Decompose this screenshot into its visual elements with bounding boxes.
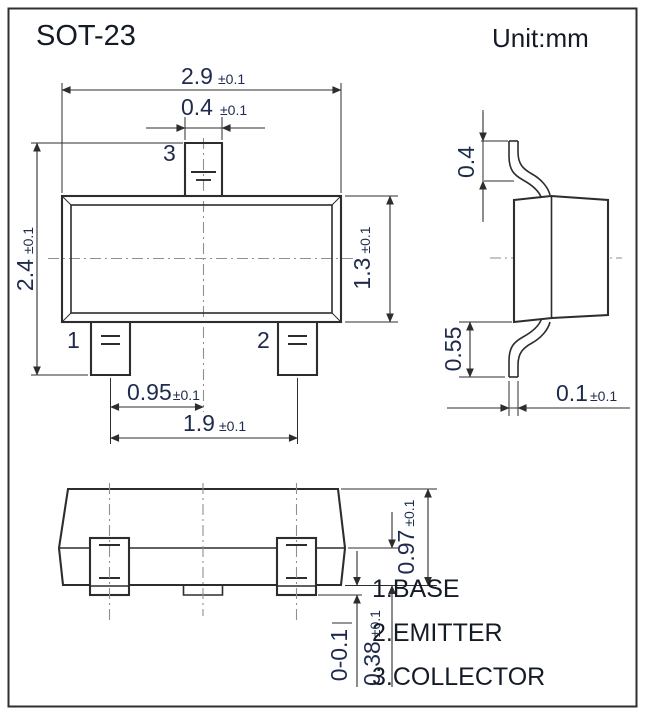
legend-item-collector: 3.COLLECTOR: [372, 663, 545, 691]
dim-value: 0.55: [440, 327, 466, 372]
pin2-number: 2: [257, 327, 270, 353]
dim-tolerance: ±0.1: [220, 102, 247, 118]
pin3-number: 3: [163, 140, 176, 166]
dim-tolerance: ±0.1: [20, 227, 36, 254]
side-body-outline: [514, 196, 608, 322]
dim-value: 2.4: [12, 259, 38, 291]
dim-tolerance: ±0.1: [173, 387, 200, 403]
drawing-frame: [9, 9, 637, 707]
dim-value: 0-0.1: [326, 629, 352, 681]
dim-value: 2.9: [181, 63, 213, 89]
unit-label: Unit:mm: [492, 23, 589, 53]
dim-value: 1.9: [183, 410, 215, 436]
legend-item-emitter: 2.EMITTER: [372, 619, 503, 647]
dim-value: 0.4: [453, 146, 479, 178]
dim-standoff-label: 0-0.1: [326, 629, 352, 681]
dim-value: 0.97: [393, 530, 419, 575]
dim-tolerance: ±0.1: [219, 418, 246, 434]
dim-value: 0.95: [127, 379, 172, 405]
sot23-outline-drawing: SOT-23 Unit:mm 3 1 2 2.: [0, 0, 645, 715]
page-title: SOT-23: [36, 20, 136, 52]
dim-tolerance: ±0.1: [218, 71, 245, 87]
dim-lower-lead-label: 0.55: [440, 327, 466, 372]
dim-tolerance: ±0.1: [590, 388, 617, 404]
package-outline-page: SOT-23 Unit:mm 3 1 2 2.: [0, 0, 645, 715]
pin1-number: 1: [67, 327, 80, 353]
dim-value: 0.1: [556, 380, 588, 406]
dim-tolerance: ±0.1: [401, 499, 417, 526]
legend-item-base: 1.BASE: [372, 575, 460, 603]
dim-tolerance: ±0.1: [357, 226, 373, 253]
dim-upper-lead-label: 0.4: [453, 146, 479, 178]
dim-value: 1.3: [349, 258, 375, 290]
dim-value: 0.4: [181, 94, 213, 120]
